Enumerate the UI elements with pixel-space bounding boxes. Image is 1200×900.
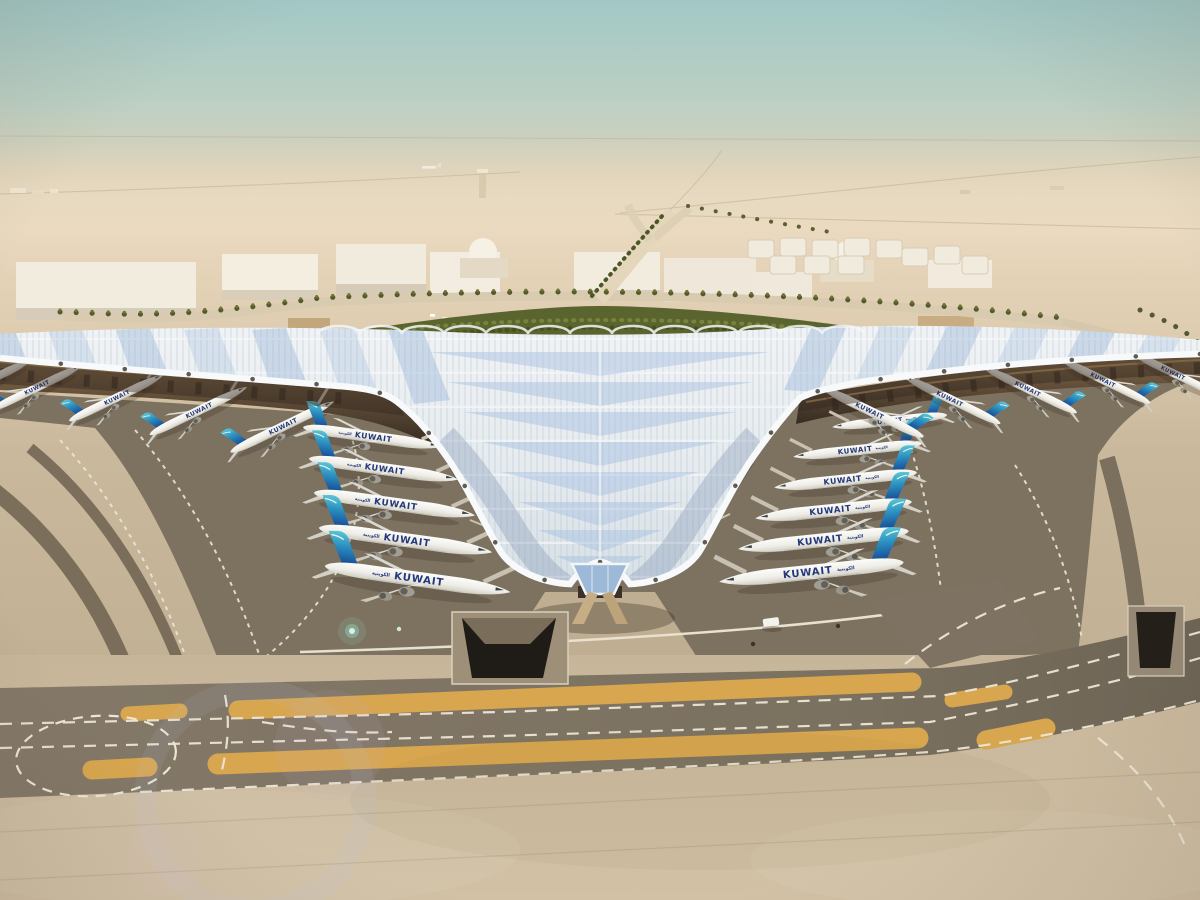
flare-blob-2 <box>127 820 203 896</box>
airport-aerial-rendering: KUWAIT KUWAIT KUWAIT KUWAIT KUWAIT KUWAI… <box>0 0 1200 900</box>
flare-blob <box>275 690 385 800</box>
flare-dot <box>349 628 355 634</box>
vignette <box>0 0 1200 900</box>
rendering-canvas: KUWAIT KUWAIT KUWAIT KUWAIT KUWAIT KUWAI… <box>0 0 1200 900</box>
flare-dot-small <box>397 627 401 631</box>
